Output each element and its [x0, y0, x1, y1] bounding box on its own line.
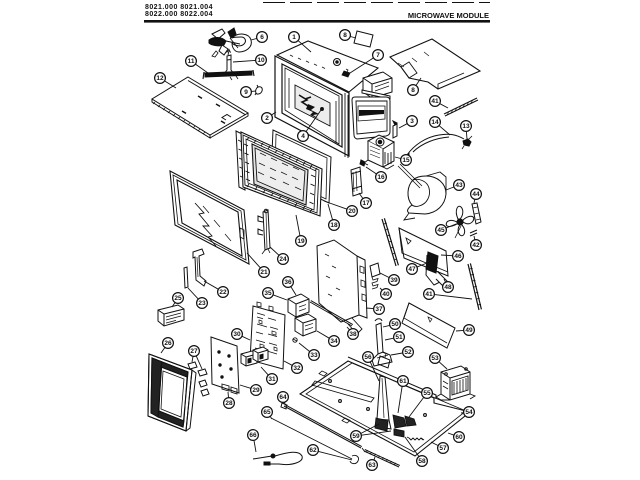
- svg-text:11: 11: [188, 58, 195, 65]
- svg-text:54: 54: [465, 409, 473, 416]
- svg-text:39: 39: [390, 277, 398, 284]
- svg-text:46: 46: [454, 253, 462, 260]
- svg-text:27: 27: [190, 348, 198, 355]
- svg-text:50: 50: [391, 321, 399, 328]
- svg-text:14: 14: [431, 119, 439, 126]
- svg-text:12: 12: [156, 75, 164, 82]
- svg-text:52: 52: [404, 349, 412, 356]
- svg-text:30: 30: [233, 331, 241, 338]
- svg-text:36: 36: [284, 279, 292, 286]
- svg-text:38: 38: [349, 331, 357, 338]
- svg-text:6: 6: [260, 34, 264, 41]
- svg-text:44: 44: [472, 191, 480, 198]
- svg-text:10: 10: [257, 57, 265, 64]
- svg-text:22: 22: [219, 289, 227, 296]
- svg-text:13: 13: [462, 123, 470, 130]
- svg-text:28: 28: [225, 400, 233, 407]
- svg-text:58: 58: [418, 458, 426, 465]
- svg-text:40: 40: [382, 291, 390, 298]
- svg-text:49: 49: [465, 327, 473, 334]
- svg-text:37: 37: [375, 306, 383, 313]
- svg-text:63: 63: [368, 462, 376, 469]
- svg-text:2: 2: [265, 115, 269, 122]
- svg-text:60: 60: [455, 434, 463, 441]
- svg-text:57: 57: [439, 445, 447, 452]
- svg-text:26: 26: [164, 340, 172, 347]
- svg-text:62: 62: [309, 447, 317, 454]
- svg-text:61: 61: [399, 378, 407, 385]
- svg-text:29: 29: [252, 387, 260, 394]
- svg-text:1: 1: [292, 34, 296, 41]
- svg-text:3: 3: [410, 118, 414, 125]
- svg-text:64: 64: [279, 394, 287, 401]
- svg-text:66: 66: [249, 432, 257, 439]
- svg-text:45: 45: [437, 227, 445, 234]
- svg-text:48: 48: [444, 284, 452, 291]
- svg-text:4: 4: [301, 133, 305, 140]
- svg-text:25: 25: [174, 295, 182, 302]
- svg-text:53: 53: [431, 355, 439, 362]
- svg-text:17: 17: [362, 200, 370, 207]
- svg-text:41: 41: [431, 98, 439, 105]
- svg-text:15: 15: [402, 157, 410, 164]
- svg-text:59: 59: [352, 433, 360, 440]
- svg-text:8: 8: [411, 87, 415, 94]
- svg-text:55: 55: [423, 390, 431, 397]
- svg-text:43: 43: [455, 182, 463, 189]
- svg-text:24: 24: [279, 256, 287, 263]
- svg-text:8021.000 8021.004: 8021.000 8021.004: [145, 4, 213, 11]
- svg-text:42: 42: [472, 242, 480, 249]
- svg-text:33: 33: [310, 352, 318, 359]
- svg-text:47: 47: [408, 266, 416, 273]
- svg-text:34: 34: [330, 338, 338, 345]
- svg-text:8022.000 8022.004: 8022.000 8022.004: [145, 11, 213, 18]
- svg-text:56: 56: [364, 354, 372, 361]
- svg-text:23: 23: [198, 300, 206, 307]
- svg-text:65: 65: [263, 409, 271, 416]
- svg-text:35: 35: [264, 290, 272, 297]
- svg-text:16: 16: [377, 174, 385, 181]
- svg-text:31: 31: [268, 376, 276, 383]
- svg-text:20: 20: [348, 208, 356, 215]
- svg-text:41: 41: [425, 291, 433, 298]
- svg-text:18: 18: [330, 222, 338, 229]
- svg-text:32: 32: [293, 365, 301, 372]
- svg-text:9: 9: [244, 89, 248, 96]
- svg-text:8: 8: [343, 32, 347, 39]
- svg-text:21: 21: [260, 269, 268, 276]
- svg-text:19: 19: [297, 238, 305, 245]
- svg-text:7: 7: [376, 52, 380, 59]
- svg-text:51: 51: [395, 334, 403, 341]
- svg-text:MICROWAVE MODULE: MICROWAVE MODULE: [408, 11, 489, 20]
